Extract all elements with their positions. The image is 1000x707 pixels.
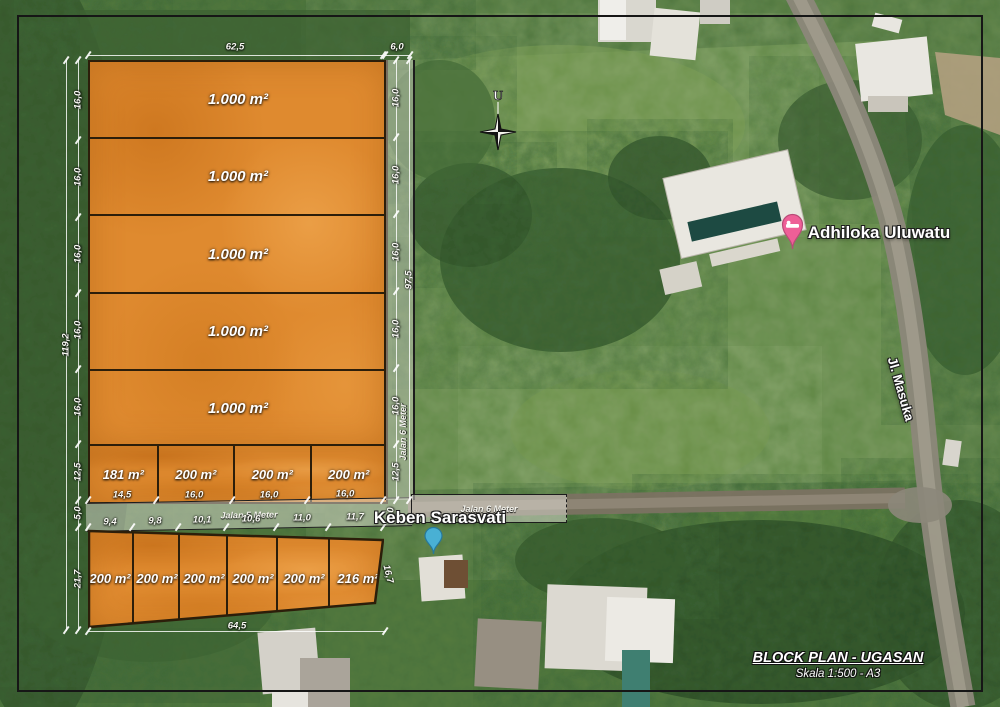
parcel-area-label: 1.000 m²: [208, 323, 268, 340]
dim-line-right-inner: [396, 60, 397, 500]
hotel-pin-icon: [779, 212, 806, 251]
parcel-row: 1.000 m²: [90, 62, 386, 139]
parcel-row: 1.000 m²: [90, 139, 386, 216]
parcel-row: 1.000 m²: [90, 294, 386, 371]
parcel-area-label: 200 m²: [136, 571, 177, 586]
dim-label: 10,6: [242, 514, 261, 525]
dim-label: 14,5: [113, 490, 132, 501]
dim-label: 10,1: [193, 515, 212, 526]
parcel-cell: 200 m²: [88, 527, 132, 629]
pool: [622, 650, 650, 707]
dim-label: 62,5: [226, 42, 245, 53]
dim-label: 16,0: [260, 490, 279, 501]
dim-label: 16,0: [73, 91, 84, 110]
compass-icon: U: [468, 84, 528, 160]
dim-label: 16,0: [73, 321, 84, 340]
parcel-row: 1.000 m²: [90, 216, 386, 293]
parcel-area-label: 1.000 m²: [208, 91, 268, 108]
parcel-area-label: 200 m²: [89, 571, 130, 586]
dim-label: 16,0: [185, 490, 204, 501]
parcel-area-label: 200 m²: [183, 571, 224, 586]
block-plan-map: 1.000 m² 1.000 m² 1.000 m² 1.000 m² 1.00…: [0, 0, 1000, 707]
dim-label: 16,0: [336, 489, 355, 500]
dim-label: 9,4: [103, 517, 116, 528]
dim-label: 16,0: [391, 320, 402, 339]
dim-line-left-inner: [78, 60, 79, 631]
title-block: BLOCK PLAN - UGASAN Skala 1:500 - A3: [738, 649, 938, 680]
dim-label: 119,2: [61, 333, 72, 356]
dim-label: 11,7: [346, 512, 364, 523]
poi-label-keben: Keben Sarasvati: [374, 508, 506, 528]
plan-scale: Skala 1:500 - A3: [738, 668, 938, 680]
parcel-area-label: 1.000 m²: [208, 168, 268, 185]
dim-label: 6,0: [390, 42, 403, 53]
parcel-cell: 200 m²: [132, 527, 180, 629]
dim-label: 12,5: [391, 463, 402, 482]
parcel-block-large: 1.000 m² 1.000 m² 1.000 m² 1.000 m² 1.00…: [88, 60, 388, 448]
dim-label: 16,0: [391, 89, 402, 108]
parcel-area-label: 200 m²: [252, 467, 293, 482]
dim-label: 21,7: [73, 570, 84, 589]
place-pin-icon: [423, 526, 444, 556]
compass-north-letter: U: [493, 89, 503, 104]
dim-label: 9,8: [148, 516, 161, 527]
parcel-area-label: 200 m²: [175, 467, 216, 482]
parcel-row: 1.000 m²: [90, 371, 386, 446]
parcel-cell: 200 m²: [178, 527, 228, 629]
parcel-area-label: 1.000 m²: [208, 246, 268, 263]
dim-label: 12,5: [73, 463, 84, 482]
dim-label: 11,0: [293, 513, 311, 524]
dim-label: 64,5: [228, 621, 247, 632]
dim-line-top: [88, 55, 383, 56]
parcel-area-label: 216 m²: [337, 571, 378, 586]
parcel-area-label: 181 m²: [103, 467, 144, 482]
parcel-area-label: 200 m²: [328, 467, 369, 482]
dim-label: 16,0: [73, 245, 84, 264]
dim-label: 16,0: [391, 243, 402, 262]
poi-label-adhiloka: Adhiloka Uluwatu: [808, 223, 951, 243]
parcel-area-label: 1.000 m²: [208, 400, 268, 417]
dim-label: 16,0: [73, 398, 84, 417]
dim-label: 5,0: [73, 506, 84, 519]
plan-title: BLOCK PLAN - UGASAN: [753, 650, 924, 666]
dim-label: 16,0: [391, 166, 402, 185]
parcel-area-label: 200 m²: [283, 571, 324, 586]
dim-label: 16,0: [73, 168, 84, 187]
parcel-area-label: 200 m²: [232, 571, 273, 586]
dim-label: 97,5: [404, 271, 415, 290]
dim-label: 16,0: [391, 397, 402, 416]
